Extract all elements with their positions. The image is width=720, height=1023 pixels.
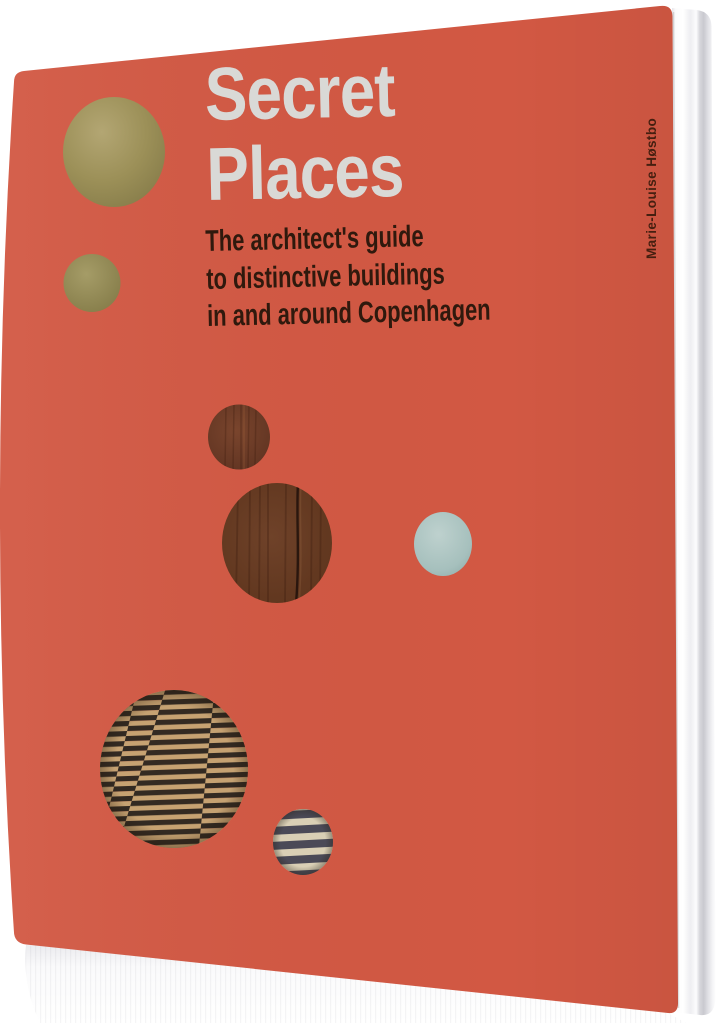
book-title: Secret Places (204, 49, 439, 214)
title-text-2: Places (206, 130, 405, 214)
author-name: Marie-Louise Høstbo (644, 118, 659, 259)
title-line-1: Secret (204, 49, 437, 134)
book-cover-photo: Secret Places The architect's guide to d… (0, 0, 720, 1023)
title-text-1: Secret (204, 50, 395, 134)
brass-circle-small (64, 254, 121, 312)
book-subtitle: The architect's guide to distinctive bui… (205, 214, 596, 335)
pale-blue-circle (414, 512, 472, 576)
brass-circle-large (63, 97, 165, 207)
title-line-2: Places (206, 129, 439, 214)
